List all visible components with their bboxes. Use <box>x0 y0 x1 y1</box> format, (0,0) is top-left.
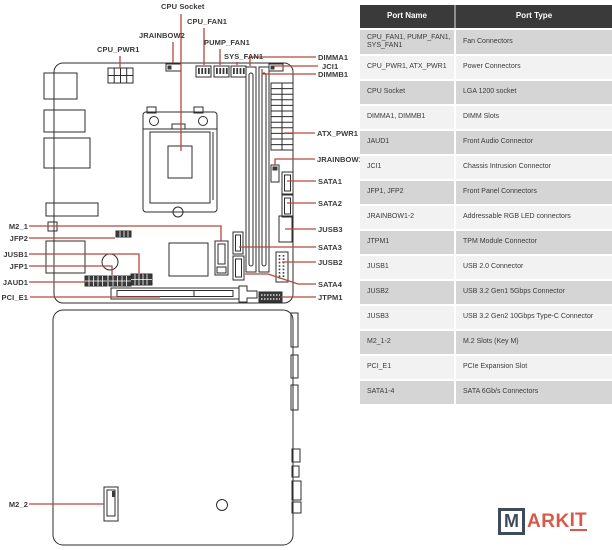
table-row: CPU_PWR1, ATX_PWR1 Power Connectors <box>360 56 612 79</box>
port-type-cell: PCIe Expansion Slot <box>456 356 612 379</box>
table-row: CPU_FAN1, PUMP_FAN1, SYS_FAN1 Fan Connec… <box>360 30 612 54</box>
port-type-cell: LGA 1200 socket <box>456 81 612 104</box>
port-type-cell: SATA 6Gb/s Connectors <box>456 381 612 404</box>
column-header-port-type: Port Type <box>456 5 612 28</box>
port-name-cell: JRAINBOW1-2 <box>360 206 454 229</box>
table-row: DIMMA1, DIMMB1 DIMM Slots <box>360 106 612 129</box>
port-type-cell: USB 3.2 Gen1 5Gbps Connector <box>456 281 612 304</box>
port-name-cell: CPU_FAN1, PUMP_FAN1, SYS_FAN1 <box>360 30 454 54</box>
port-name-cell: JUSB2 <box>360 281 454 304</box>
atx-power-connector <box>271 83 293 150</box>
table-row: JCI1 Chassis Intrusion Connector <box>360 156 612 179</box>
table-row: M2_1-2 M.2 Slots (Key M) <box>360 331 612 354</box>
port-type-cell: Addressable RGB LED connectors <box>456 206 612 229</box>
port-name-cell: JFP1, JFP2 <box>360 181 454 204</box>
jrainbow2-connector <box>166 64 181 71</box>
label-jusb3: JUSB3 <box>318 225 343 234</box>
label-sata3: SATA3 <box>318 243 342 252</box>
table-row: JUSB2 USB 3.2 Gen1 5Gbps Connector <box>360 281 612 304</box>
jtpm1-connector <box>259 292 282 302</box>
label-dimmb1: DIMMB1 <box>318 70 348 79</box>
label-cpu-pwr1: CPU_PWR1 <box>97 45 139 54</box>
label-sata1: SATA1 <box>318 177 342 186</box>
port-type-cell: Chassis Intrusion Connector <box>456 156 612 179</box>
port-type-cell: Power Connectors <box>456 56 612 79</box>
port-name-cell: JUSB3 <box>360 306 454 329</box>
callout-lines <box>29 14 318 504</box>
cpu-socket <box>143 107 217 217</box>
label-cpu-fan1: CPU_FAN1 <box>187 17 227 26</box>
table-row: SATA1-4 SATA 6Gb/s Connectors <box>360 381 612 404</box>
table-row: JUSB3 USB 3.2 Gen2 10Gbps Type-C Connect… <box>360 306 612 329</box>
label-sata2: SATA2 <box>318 199 342 208</box>
dimm-slots <box>246 67 269 272</box>
table-row: JUSB1 USB 2.0 Connector <box>360 256 612 279</box>
m2-slot-1 <box>215 241 228 275</box>
port-name-cell: DIMMA1, DIMMB1 <box>360 106 454 129</box>
mounting-hole <box>217 500 228 511</box>
port-name-cell: M2_1-2 <box>360 331 454 354</box>
table-row: JFP1, JFP2 Front Panel Connectors <box>360 181 612 204</box>
logo-it-text: IT <box>570 512 587 531</box>
port-name-cell: CPU Socket <box>360 81 454 104</box>
port-table: Port Name Port Type CPU_FAN1, PUMP_FAN1,… <box>360 5 612 406</box>
table-row: JAUD1 Front Audio Connector <box>360 131 612 154</box>
label-jrainbow1: JRAINBOW1 <box>317 155 363 164</box>
logo-m-box: M <box>498 508 525 535</box>
label-m2-1: M2_1 <box>0 222 28 231</box>
table-row: PCI_E1 PCIe Expansion Slot <box>360 356 612 379</box>
label-jfp1: JFP1 <box>0 262 28 271</box>
label-jaud1: JAUD1 <box>0 278 28 287</box>
jci1-connector <box>269 64 283 71</box>
port-type-cell: Fan Connectors <box>456 30 612 54</box>
port-type-cell: DIMM Slots <box>456 106 612 129</box>
port-type-cell: Front Audio Connector <box>456 131 612 154</box>
column-header-port-name: Port Name <box>360 5 454 28</box>
markit-logo: M ARK IT <box>498 508 587 535</box>
cmos-battery <box>102 254 118 270</box>
fan-connectors <box>196 66 246 77</box>
chipset <box>169 243 208 276</box>
port-name-cell: JCI1 <box>360 156 454 179</box>
rear-io-connectors <box>44 73 98 273</box>
port-name-cell: JTPM1 <box>360 231 454 254</box>
page: CPU Socket CPU_FAN1 JRAINBOW2 PUMP_FAN1 … <box>0 0 612 550</box>
label-pump-fan1: PUMP_FAN1 <box>204 38 250 47</box>
label-atx-pwr1: ATX_PWR1 <box>317 129 358 138</box>
port-type-cell: M.2 Slots (Key M) <box>456 331 612 354</box>
m2-slot-2 <box>104 487 118 521</box>
label-pci-e1: PCI_E1 <box>0 293 28 302</box>
port-type-cell: TPM Module Connector <box>456 231 612 254</box>
logo-ark-text: ARK <box>527 511 570 533</box>
jfp2-connector <box>116 231 131 237</box>
port-name-cell: JAUD1 <box>360 131 454 154</box>
label-jusb1: JUSB1 <box>0 250 28 259</box>
label-jrainbow2: JRAINBOW2 <box>139 31 185 40</box>
port-type-cell: USB 3.2 Gen2 10Gbps Type-C Connector <box>456 306 612 329</box>
motherboard-top-view <box>44 63 293 303</box>
label-jusb2: JUSB2 <box>318 258 343 267</box>
port-name-cell: SATA1-4 <box>360 381 454 404</box>
label-sys-fan1: SYS_FAN1 <box>224 52 263 61</box>
label-sata4: SATA4 <box>318 280 342 289</box>
front-panel-headers <box>85 274 152 286</box>
cpu-power-connector <box>108 68 133 83</box>
port-type-cell: USB 2.0 Connector <box>456 256 612 279</box>
table-row: JTPM1 TPM Module Connector <box>360 231 612 254</box>
port-name-cell: CPU_PWR1, ATX_PWR1 <box>360 56 454 79</box>
port-name-cell: JUSB1 <box>360 256 454 279</box>
pcie-slot <box>111 286 257 302</box>
motherboard-bottom-view <box>53 310 301 545</box>
label-jfp2: JFP2 <box>0 234 28 243</box>
label-jtpm1: JTPM1 <box>318 293 343 302</box>
label-m2-2: M2_2 <box>0 500 28 509</box>
jrainbow1-connector <box>271 165 279 182</box>
port-name-cell: PCI_E1 <box>360 356 454 379</box>
port-type-cell: Front Panel Connectors <box>456 181 612 204</box>
sata-ports <box>233 172 293 280</box>
table-header-row: Port Name Port Type <box>360 5 612 28</box>
label-dimma1: DIMMA1 <box>318 53 348 62</box>
table-row: CPU Socket LGA 1200 socket <box>360 81 612 104</box>
table-row: JRAINBOW1-2 Addressable RGB LED connecto… <box>360 206 612 229</box>
label-cpu-socket: CPU Socket <box>161 2 205 11</box>
